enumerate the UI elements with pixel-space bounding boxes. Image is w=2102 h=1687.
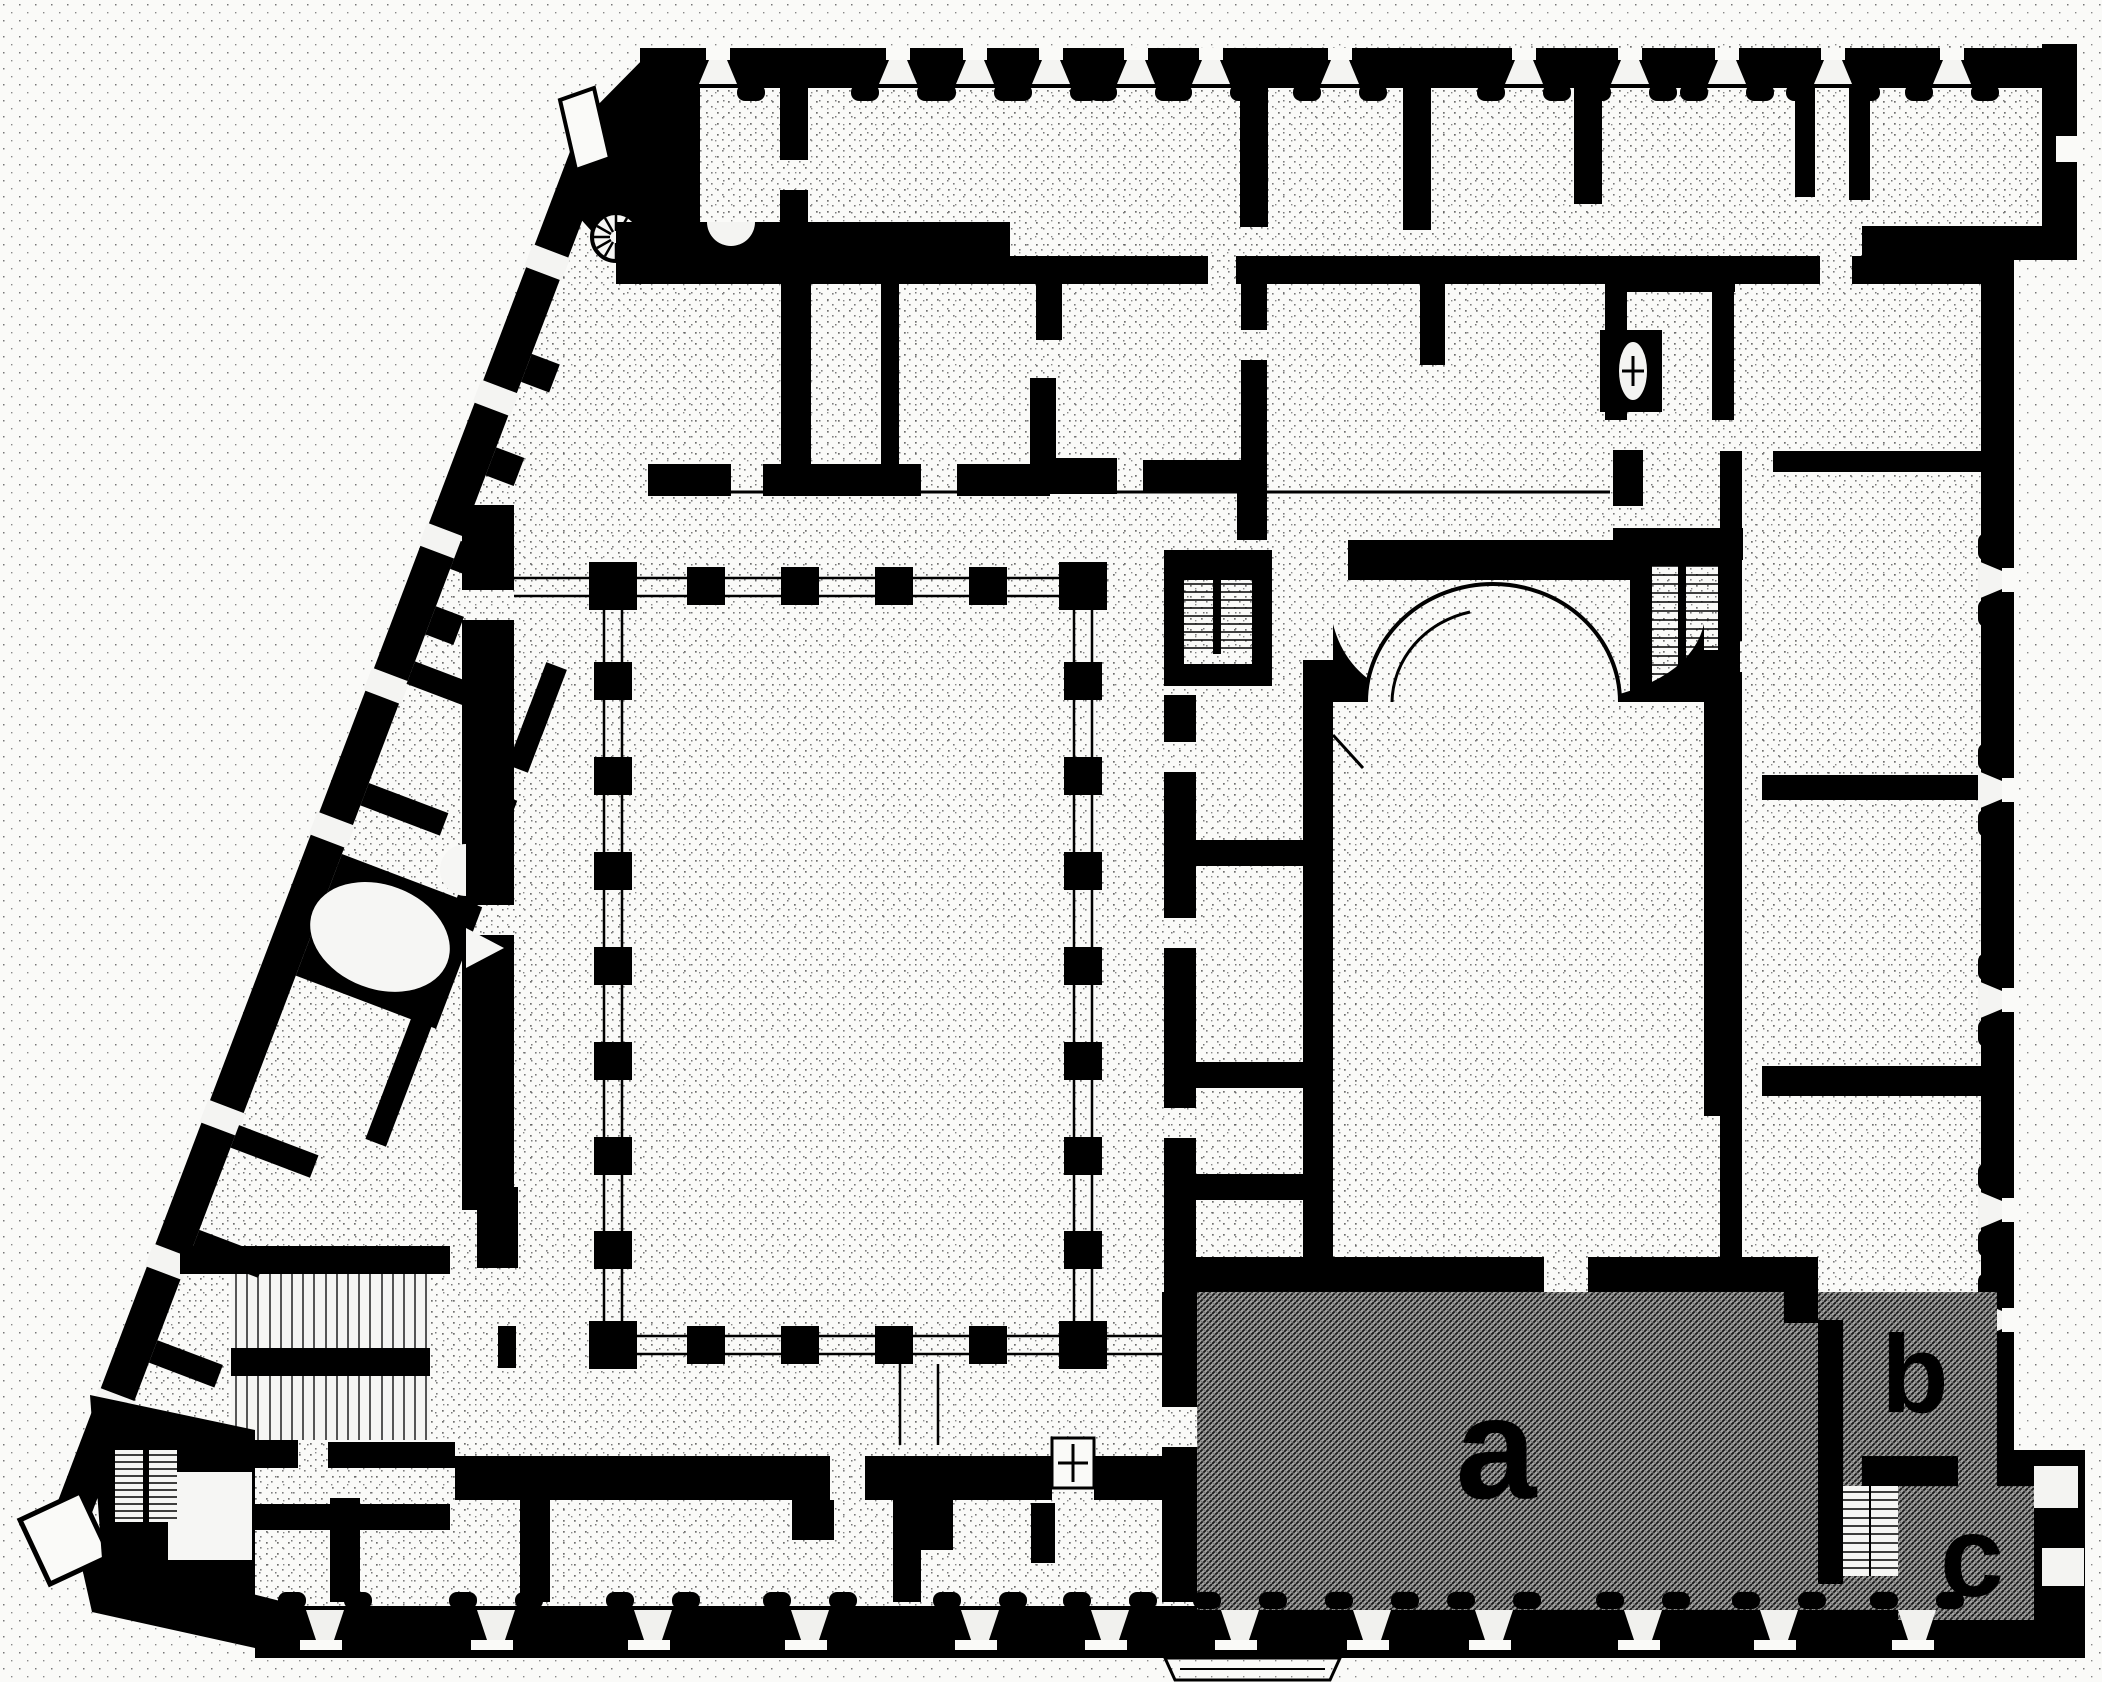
svg-text:b: b bbox=[1881, 1313, 1948, 1436]
svg-text:a: a bbox=[1456, 1367, 1538, 1529]
